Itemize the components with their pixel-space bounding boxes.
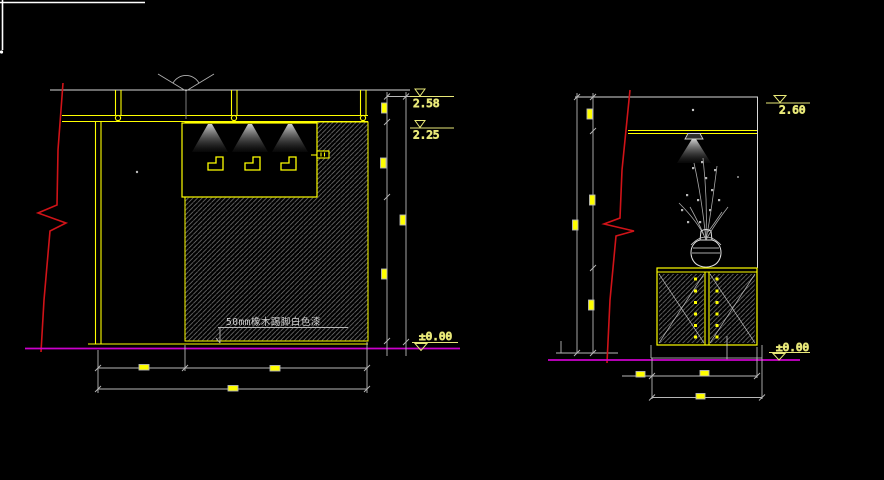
downlight-icon	[677, 134, 711, 164]
height-dimensions-left	[381, 92, 411, 356]
right-elevation-drawing: 2.60 ±0.00	[548, 90, 810, 401]
level-marker-floor-left: ±0.00	[412, 330, 458, 351]
cad-drawing-canvas: 50mm橡木踢脚白色漆	[0, 0, 884, 480]
downlight-beam-icons	[192, 124, 308, 152]
viewport-corner-marks	[0, 0, 145, 54]
stray-point-3	[737, 176, 739, 178]
plant-icon	[679, 158, 728, 240]
level-marker-260: 2.60	[766, 96, 810, 117]
left-elevation-drawing: 50mm橡木踢脚白色漆	[25, 74, 460, 393]
level-value-225: 2.25	[413, 129, 440, 142]
level-value-floor-left: ±0.00	[419, 330, 452, 343]
break-line-left	[38, 83, 66, 352]
level-marker-floor-right: ±0.00	[769, 341, 810, 360]
cad-viewport[interactable]: 50mm橡木踢脚白色漆	[0, 0, 884, 480]
cabinet	[651, 268, 762, 360]
stray-point	[136, 171, 138, 173]
level-value-260: 2.60	[779, 104, 806, 117]
suspended-ceiling	[62, 116, 368, 122]
level-value-258: 2.58	[413, 97, 440, 110]
wall-edge-lines	[96, 122, 102, 345]
level-marker-225: 2.25	[410, 121, 454, 142]
bottom-dimensions-right	[622, 347, 765, 401]
bottom-dimensions-left	[95, 342, 370, 393]
skirting-note-text: 50mm橡木踢脚白色漆	[226, 316, 321, 328]
stray-point-2	[692, 109, 694, 111]
level-marker-258: 2.58	[410, 89, 454, 110]
section-mark-icon	[158, 74, 214, 119]
